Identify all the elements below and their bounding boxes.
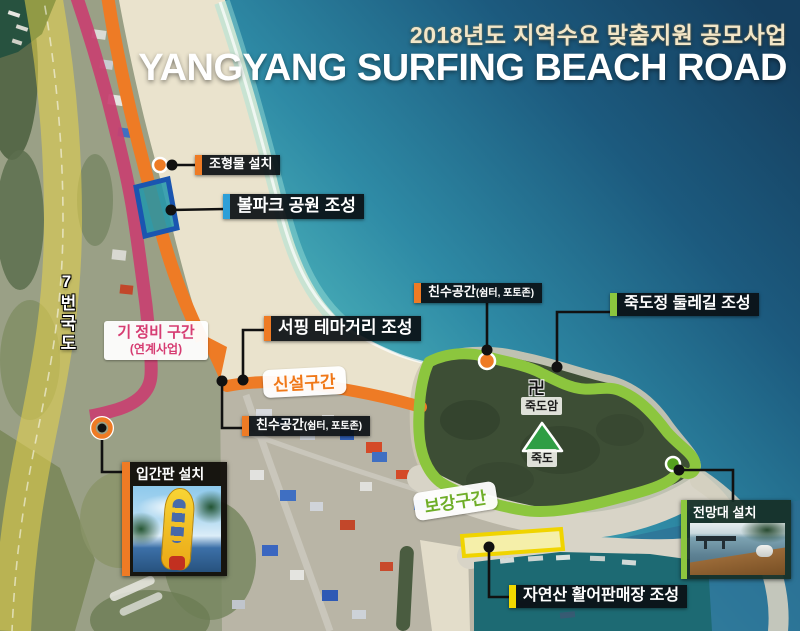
fish-market-area-rect bbox=[462, 529, 563, 556]
program-subtitle: 2018년도 지역수요 맞춤지원 공모사업 bbox=[410, 16, 787, 50]
signboard-photo bbox=[133, 486, 221, 572]
tag-new-section: 신설구간 bbox=[262, 366, 346, 398]
trees-icon bbox=[741, 523, 785, 543]
waterfront-upper-sub: (쉼터, 포토존) bbox=[476, 288, 534, 299]
cylinder-icon bbox=[756, 545, 773, 557]
callout-surfing-street-label: 서핑 테마거리 조성 bbox=[278, 318, 413, 337]
tag-existing-line2: (연계사업) bbox=[108, 342, 204, 356]
poster-map: 2018년도 지역수요 맞춤지원 공모사업 YANGYANG SURFING B… bbox=[0, 0, 800, 631]
waterfront-lower-sub: (쉼터, 포토존) bbox=[304, 421, 362, 432]
waterfront-lower-main: 친수공간 bbox=[256, 417, 304, 432]
sculpture-marker bbox=[153, 158, 167, 172]
callout-ballpark-label: 볼파크 공원 조성 bbox=[237, 196, 356, 215]
dot bbox=[674, 465, 685, 476]
tag-existing-line1: 기 정비 구간 bbox=[108, 324, 204, 342]
callout-waterfront-upper: 친수공간(쉼터, 포토존) bbox=[414, 283, 542, 303]
poi-temple-label: 죽도암 bbox=[521, 397, 562, 415]
callout-observatory-label: 전망대 설치 bbox=[687, 500, 791, 522]
deck-icon bbox=[696, 536, 736, 541]
callout-surfing-street: 서핑 테마거리 조성 bbox=[264, 316, 421, 341]
palm-icon bbox=[191, 490, 221, 524]
dot bbox=[167, 160, 178, 171]
road-7-label: 7번국도 bbox=[54, 272, 79, 354]
dot bbox=[484, 542, 495, 553]
callout-dulle-trail: 죽도정 둘레길 조성 bbox=[610, 293, 759, 316]
waterfront-upper-main: 친수공간 bbox=[428, 284, 476, 299]
callout-fish-market: 자연산 활어판매장 조성 bbox=[509, 585, 687, 608]
callout-dulle-trail-label: 죽도정 둘레길 조성 bbox=[624, 295, 751, 312]
dot bbox=[166, 205, 177, 216]
poi-island-label: 죽도 bbox=[527, 449, 557, 467]
page-title: YANGYANG SURFING BEACH ROAD bbox=[138, 47, 787, 90]
callout-fish-market-label: 자연산 활어판매장 조성 bbox=[523, 587, 679, 604]
callout-sculpture: 조형물 설치 bbox=[195, 155, 280, 175]
callout-ballpark: 볼파크 공원 조성 bbox=[223, 194, 364, 219]
callout-sculpture-label: 조형물 설치 bbox=[209, 156, 272, 171]
observatory-photo bbox=[690, 523, 785, 575]
dot bbox=[217, 376, 228, 387]
dot bbox=[552, 362, 563, 373]
tag-existing-section: 기 정비 구간 (연계사업) bbox=[104, 321, 208, 360]
dot bbox=[238, 375, 249, 386]
callout-signboard: 입간판 설치 bbox=[122, 462, 227, 576]
callout-observatory: 전망대 설치 bbox=[681, 500, 791, 579]
callout-waterfront-lower: 친수공간(쉼터, 포토존) bbox=[242, 416, 370, 436]
callout-signboard-label: 입간판 설치 bbox=[130, 462, 227, 485]
dot bbox=[482, 345, 493, 356]
temple-swastika-icon: 卍 bbox=[528, 374, 545, 399]
